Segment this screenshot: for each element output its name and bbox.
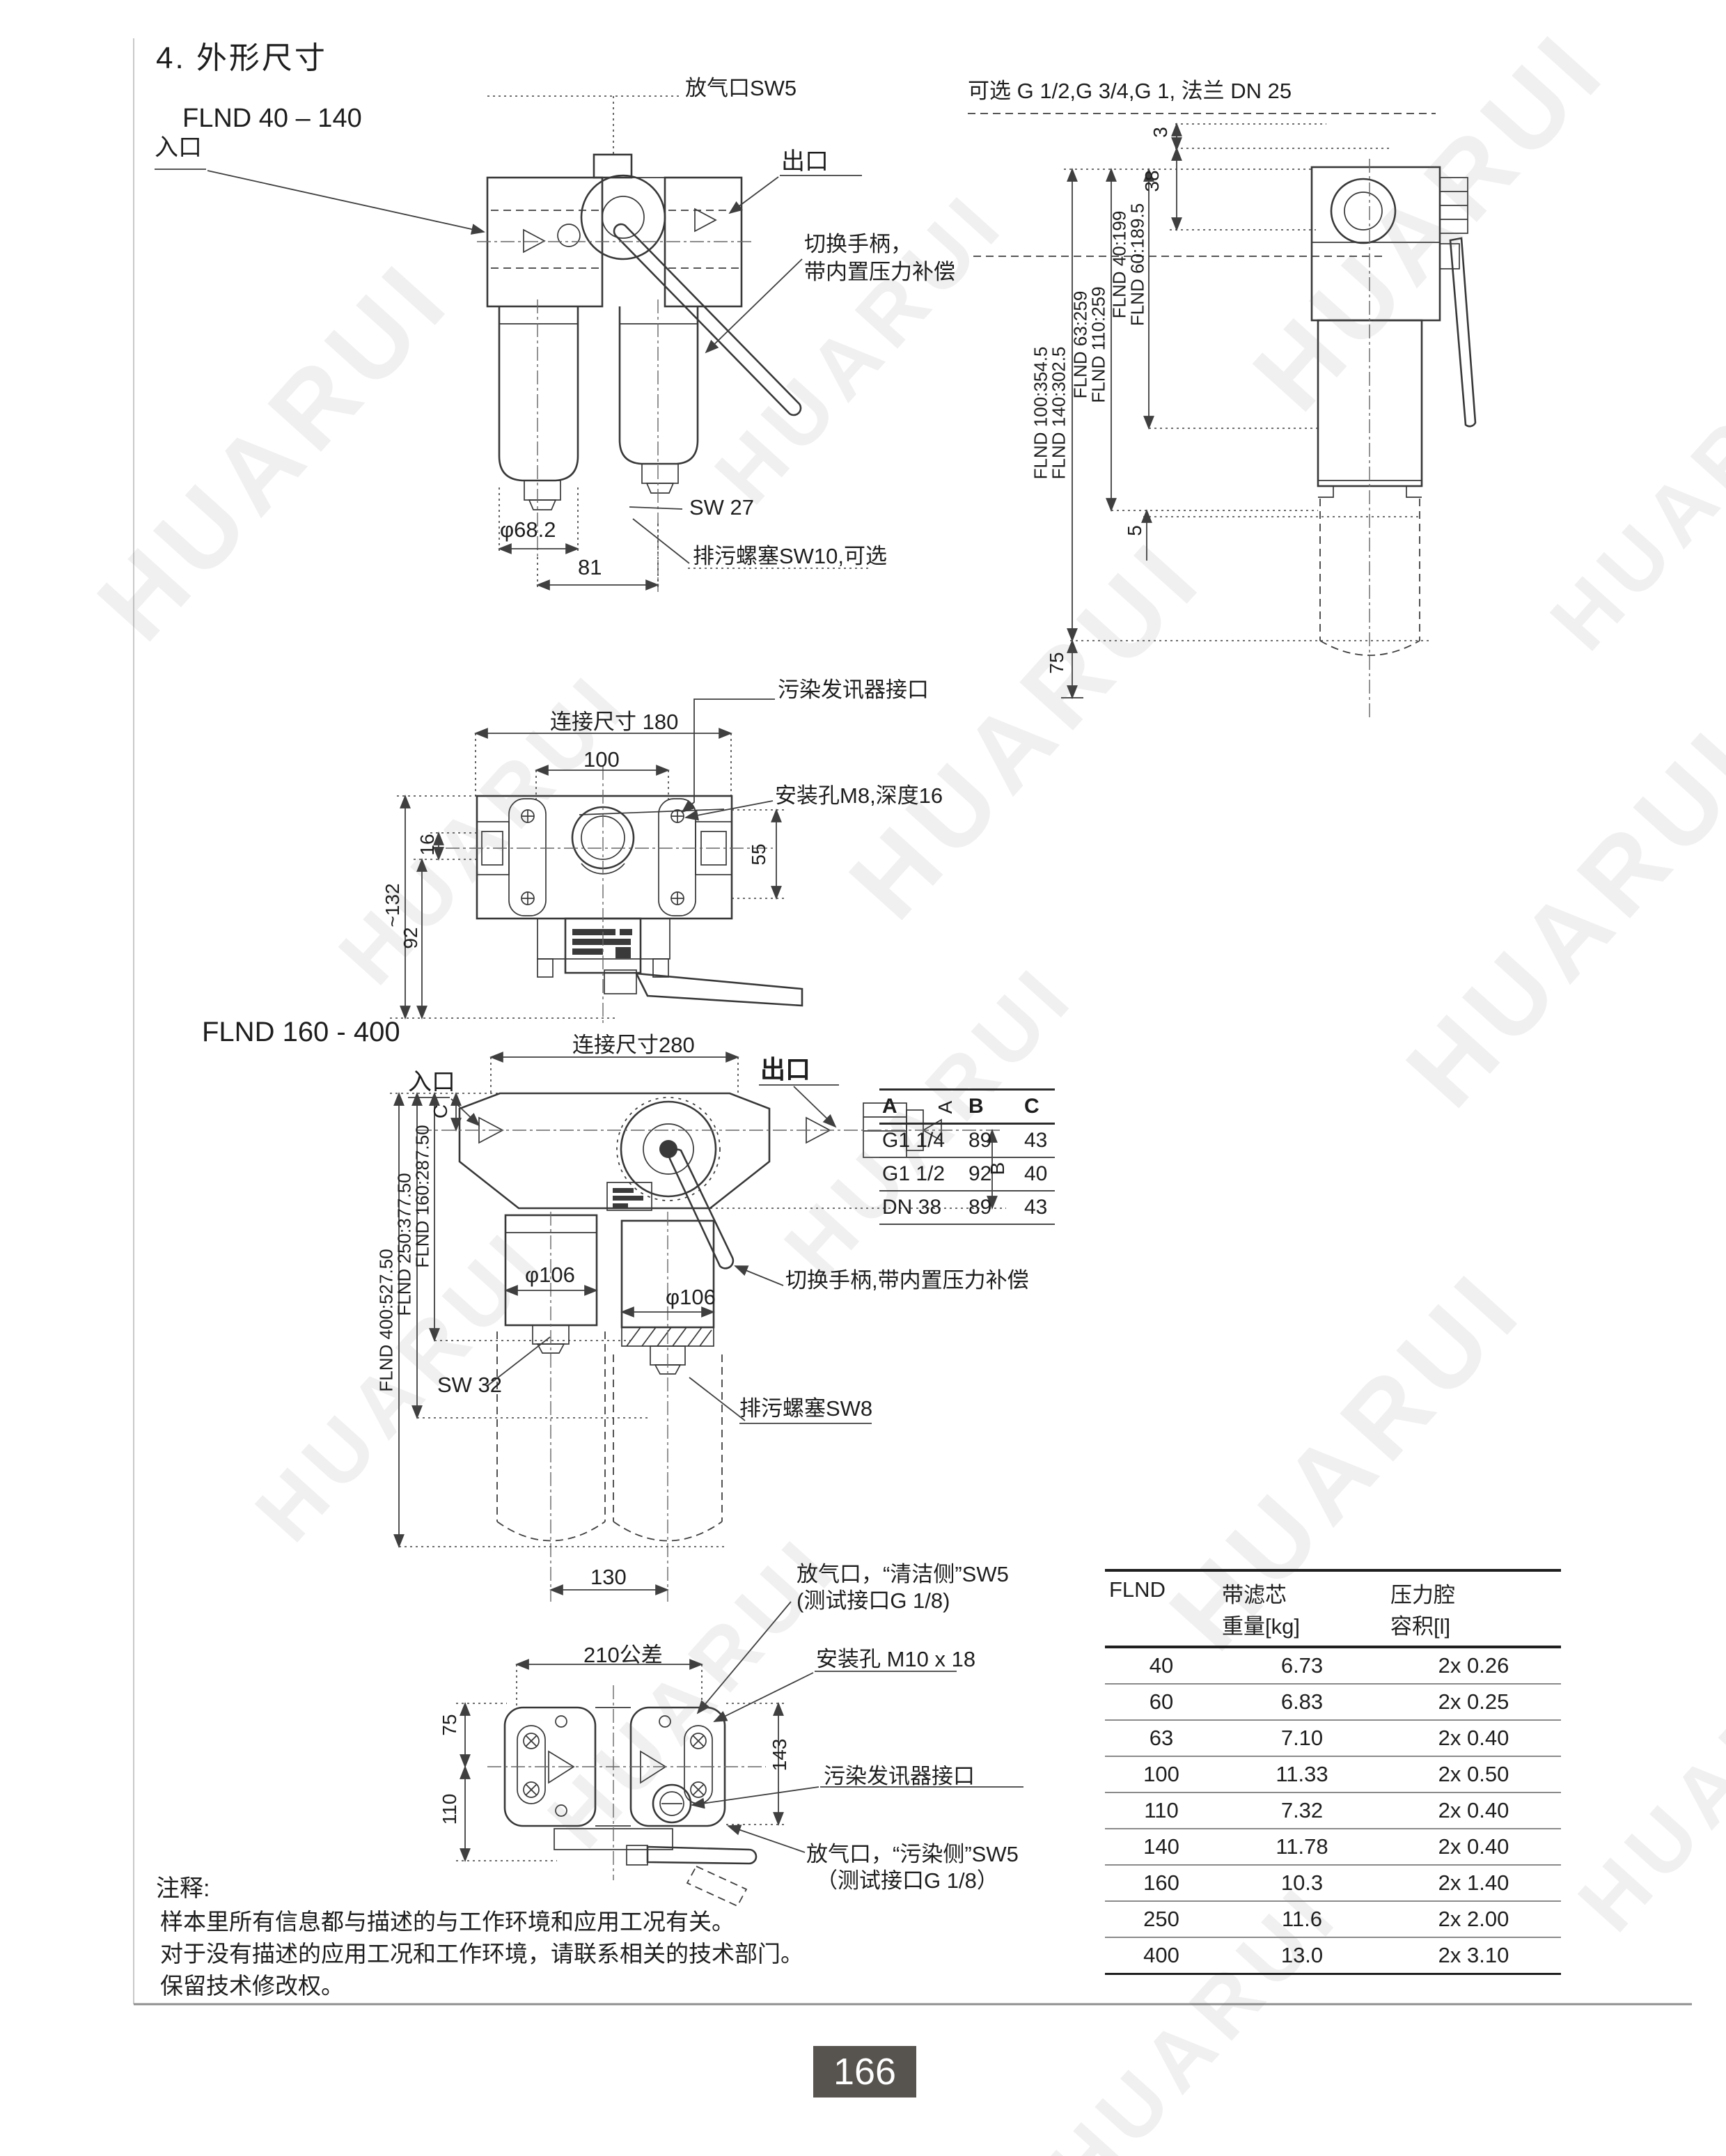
wt-cell: 6.73 [1218, 1647, 1386, 1684]
diameter-68-label: φ68.2 [500, 517, 556, 542]
dim-75-bottom-label: 75 [438, 1714, 462, 1735]
wt-cell: 7.10 [1218, 1720, 1386, 1756]
vent-dirty-label-line2: （测试接口G 1/8） [816, 1868, 998, 1893]
section-title: 4. 外形尺寸 [156, 40, 327, 77]
wt-cell: 110 [1105, 1792, 1218, 1829]
vent-port-label: 放气口SW5 [685, 75, 797, 101]
dim-110-label: 110 [438, 1794, 462, 1825]
abc-header-c: C [1021, 1090, 1055, 1124]
wt-cell: 250 [1105, 1901, 1218, 1937]
wt-header-model: FLND [1105, 1570, 1218, 1647]
height-flnd160: FLND 160:287.50 [411, 1125, 433, 1267]
wt-cell: 7.32 [1218, 1792, 1386, 1829]
wt-cell: 6.83 [1218, 1684, 1386, 1720]
weight-volume-table: FLND 带滤芯 重量[kg] 压力腔 容积[l] 406.732x 0.26 … [1105, 1569, 1561, 1975]
datasheet-page: HUARUI HUARUI HUARUI HUARUI HUARUI HUARU… [0, 0, 1726, 2156]
wt-cell: 400 [1105, 1937, 1218, 1974]
table-row: 16010.32x 1.40 [1105, 1865, 1561, 1901]
abc-cell: 89 [966, 1191, 1021, 1224]
drain-plug-label: 排污螺塞SW10,可选 [693, 543, 887, 569]
vent-dirty-label-line1: 放气口，“污染侧”SW5 [806, 1841, 1019, 1867]
signal-port-label: 污染发讯器接口 [778, 677, 929, 703]
table-row: 14011.782x 0.40 [1105, 1829, 1561, 1865]
wt-cell: 63 [1105, 1720, 1218, 1756]
wt-cell: 60 [1105, 1684, 1218, 1720]
wt-cell: 13.0 [1218, 1937, 1386, 1974]
abc-cell: 40 [1021, 1157, 1055, 1191]
wt-cell: 40 [1105, 1647, 1218, 1684]
dim-3-label: 3 [1149, 127, 1172, 138]
wt-cell: 2x 2.00 [1386, 1901, 1561, 1937]
notes-heading: 注释: [156, 1875, 210, 1903]
dim-75-label: 75 [1045, 652, 1069, 673]
conn-280-label: 连接尺寸280 [572, 1032, 695, 1058]
inlet-label: 入口 [155, 134, 202, 162]
wt-cell: 2x 0.40 [1386, 1720, 1561, 1756]
mount-hole-m8-label: 安装孔M8,深度16 [775, 783, 943, 808]
note-line: 样本里所有信息都与描述的与工作环境和应用工况有关。 [160, 1908, 735, 1936]
dim-81-label: 81 [578, 554, 602, 580]
abc-header-a: A [879, 1090, 966, 1124]
abc-cell: 89 [966, 1124, 1021, 1158]
mount-hole-m10-label: 安装孔 M10 x 18 [816, 1646, 975, 1672]
wt-header-volume-line2: 容积[l] [1390, 1609, 1557, 1640]
table-row: 1107.322x 0.40 [1105, 1792, 1561, 1829]
table-row: 606.832x 0.25 [1105, 1684, 1561, 1720]
dim-100-label: 100 [583, 747, 620, 772]
table-row: 10011.332x 0.50 [1105, 1756, 1561, 1792]
dim-38-label: 38 [1140, 170, 1164, 192]
table-row: G1 1/2 92 40 [879, 1157, 1055, 1191]
wt-cell: 100 [1105, 1756, 1218, 1792]
wt-cell: 11.6 [1218, 1901, 1386, 1937]
drain-sw8-label: 排污螺塞SW8 [739, 1396, 872, 1421]
abc-cell: G1 1/4 [879, 1124, 966, 1158]
outlet-label-160: 出口 [760, 1054, 810, 1084]
abc-cell: 92 [966, 1157, 1021, 1191]
wt-header-volume-line1: 压力腔 [1390, 1577, 1557, 1609]
wt-header-weight-line2: 重量[kg] [1222, 1609, 1382, 1640]
sw27-label: SW 27 [689, 494, 754, 520]
port-dimension-table: A B C G1 1/4 89 43 G1 1/2 92 40 DN 38 89… [879, 1088, 1055, 1225]
dim-130-label: 130 [590, 1564, 627, 1590]
wt-cell: 2x 0.50 [1386, 1756, 1561, 1792]
dia-106-right-label: φ106 [666, 1284, 716, 1310]
height-flnd60: FLND 60:189.5 [1127, 203, 1148, 326]
wt-cell: 2x 0.26 [1386, 1647, 1561, 1684]
height-flnd110: FLND 110:259 [1088, 286, 1109, 403]
wt-cell: 2x 0.25 [1386, 1684, 1561, 1720]
vent-clean-label-line2: (测试接口G 1/8) [797, 1588, 950, 1614]
dim-c-label: C [429, 1104, 453, 1118]
wt-cell: 2x 0.40 [1386, 1829, 1561, 1865]
flnd160-title: FLND 160 - 400 [202, 1015, 400, 1049]
wt-header-weight: 带滤芯 重量[kg] [1218, 1570, 1386, 1647]
abc-cell: G1 1/2 [879, 1157, 966, 1191]
flnd40-title: FLND 40 – 140 [182, 103, 362, 135]
wt-cell: 2x 0.40 [1386, 1792, 1561, 1829]
table-row: 406.732x 0.26 [1105, 1647, 1561, 1684]
abc-header-b: B [966, 1090, 1021, 1124]
wt-cell: 2x 1.40 [1386, 1865, 1561, 1901]
dia-106-left-label: φ106 [525, 1262, 575, 1288]
wt-cell: 11.33 [1218, 1756, 1386, 1792]
table-row: DN 38 89 43 [879, 1191, 1055, 1224]
handle-label-line2: 带内置压力补偿 [804, 259, 955, 285]
dim-132-label: ~132 [381, 883, 405, 927]
tolerance-210-label: 210公差 [583, 1642, 663, 1668]
table-row: 25011.62x 2.00 [1105, 1901, 1561, 1937]
wt-cell: 140 [1105, 1829, 1218, 1865]
optional-ports-label: 可选 G 1/2,G 3/4,G 1, 法兰 DN 25 [968, 78, 1292, 104]
wt-cell: 11.78 [1218, 1829, 1386, 1865]
abc-cell: 43 [1021, 1191, 1055, 1224]
table-row: G1 1/4 89 43 [879, 1124, 1055, 1158]
wt-cell: 10.3 [1218, 1865, 1386, 1901]
wt-cell: 2x 3.10 [1386, 1937, 1561, 1974]
note-line: 对于没有描述的应用工况和工作环境，请联系相关的技术部门。 [160, 1940, 803, 1968]
height-flnd140: FLND 140:302.5 [1048, 347, 1069, 480]
dim-16-label: 16 [416, 834, 439, 855]
dim-143-label: 143 [768, 1739, 792, 1772]
handle-label-line1: 切换手柄， [804, 231, 912, 257]
dim-5-label: 5 [1123, 525, 1147, 536]
wt-header-weight-line1: 带滤芯 [1222, 1577, 1382, 1609]
dim-55-label: 55 [747, 843, 771, 865]
inlet-label-160: 入口 [408, 1068, 455, 1097]
dim-92-label: 92 [399, 927, 423, 948]
conn-180-label: 连接尺寸 180 [550, 709, 678, 735]
wt-header-volume: 压力腔 容积[l] [1386, 1570, 1561, 1647]
flnd40-front-drawing [155, 96, 1384, 592]
signal-port-label-160: 污染发讯器接口 [824, 1763, 975, 1789]
table-row: 637.102x 0.40 [1105, 1720, 1561, 1756]
page-number-badge: 166 [813, 2046, 916, 2098]
vent-clean-label-line1: 放气口，“清洁侧”SW5 [797, 1561, 1009, 1587]
table-row: 40013.02x 3.10 [1105, 1937, 1561, 1974]
wt-cell: 160 [1105, 1865, 1218, 1901]
note-line: 保留技术修改权。 [160, 1972, 344, 2000]
sw32-label: SW 32 [437, 1372, 502, 1398]
outlet-label: 出口 [781, 148, 829, 176]
abc-cell: 43 [1021, 1124, 1055, 1158]
abc-cell: DN 38 [879, 1191, 966, 1224]
handle-label-160: 切换手柄,带内置压力补偿 [785, 1267, 1029, 1293]
